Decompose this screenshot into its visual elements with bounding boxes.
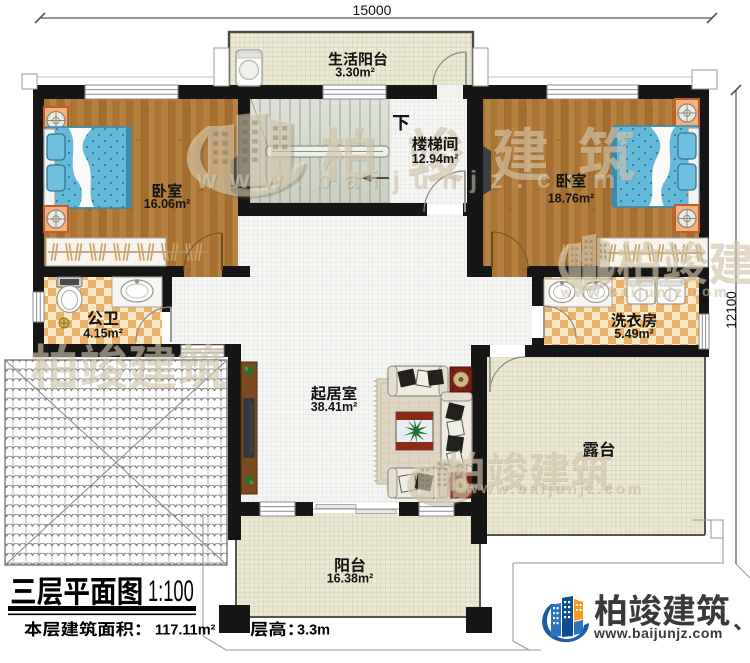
svg-text:www.baijunjz.com: www.baijunjz.com [559, 283, 729, 299]
svg-text:16.38m²: 16.38m² [327, 572, 374, 586]
svg-text:117.11m²: 117.11m² [155, 623, 216, 639]
svg-text:5.49m²: 5.49m² [614, 327, 654, 341]
svg-text:18.76m²: 18.76m² [548, 192, 595, 206]
svg-text:12.94m²: 12.94m² [412, 152, 459, 166]
svg-text:3.3m: 3.3m [297, 623, 330, 639]
svg-text:www.baijunjz.com: www.baijunjz.com [196, 166, 629, 194]
svg-text:www.baijunjz.com: www.baijunjz.com [465, 480, 643, 497]
svg-text:1:100: 1:100 [148, 576, 194, 608]
svg-text:16.06m²: 16.06m² [144, 197, 191, 211]
svg-text:4.15m²: 4.15m² [83, 327, 123, 341]
svg-text:15000: 15000 [353, 2, 392, 18]
svg-text:38.41m²: 38.41m² [311, 400, 358, 414]
svg-text:3.30m²: 3.30m² [335, 66, 375, 80]
svg-text:www.baijunjz.com: www.baijunjz.com [593, 625, 723, 641]
